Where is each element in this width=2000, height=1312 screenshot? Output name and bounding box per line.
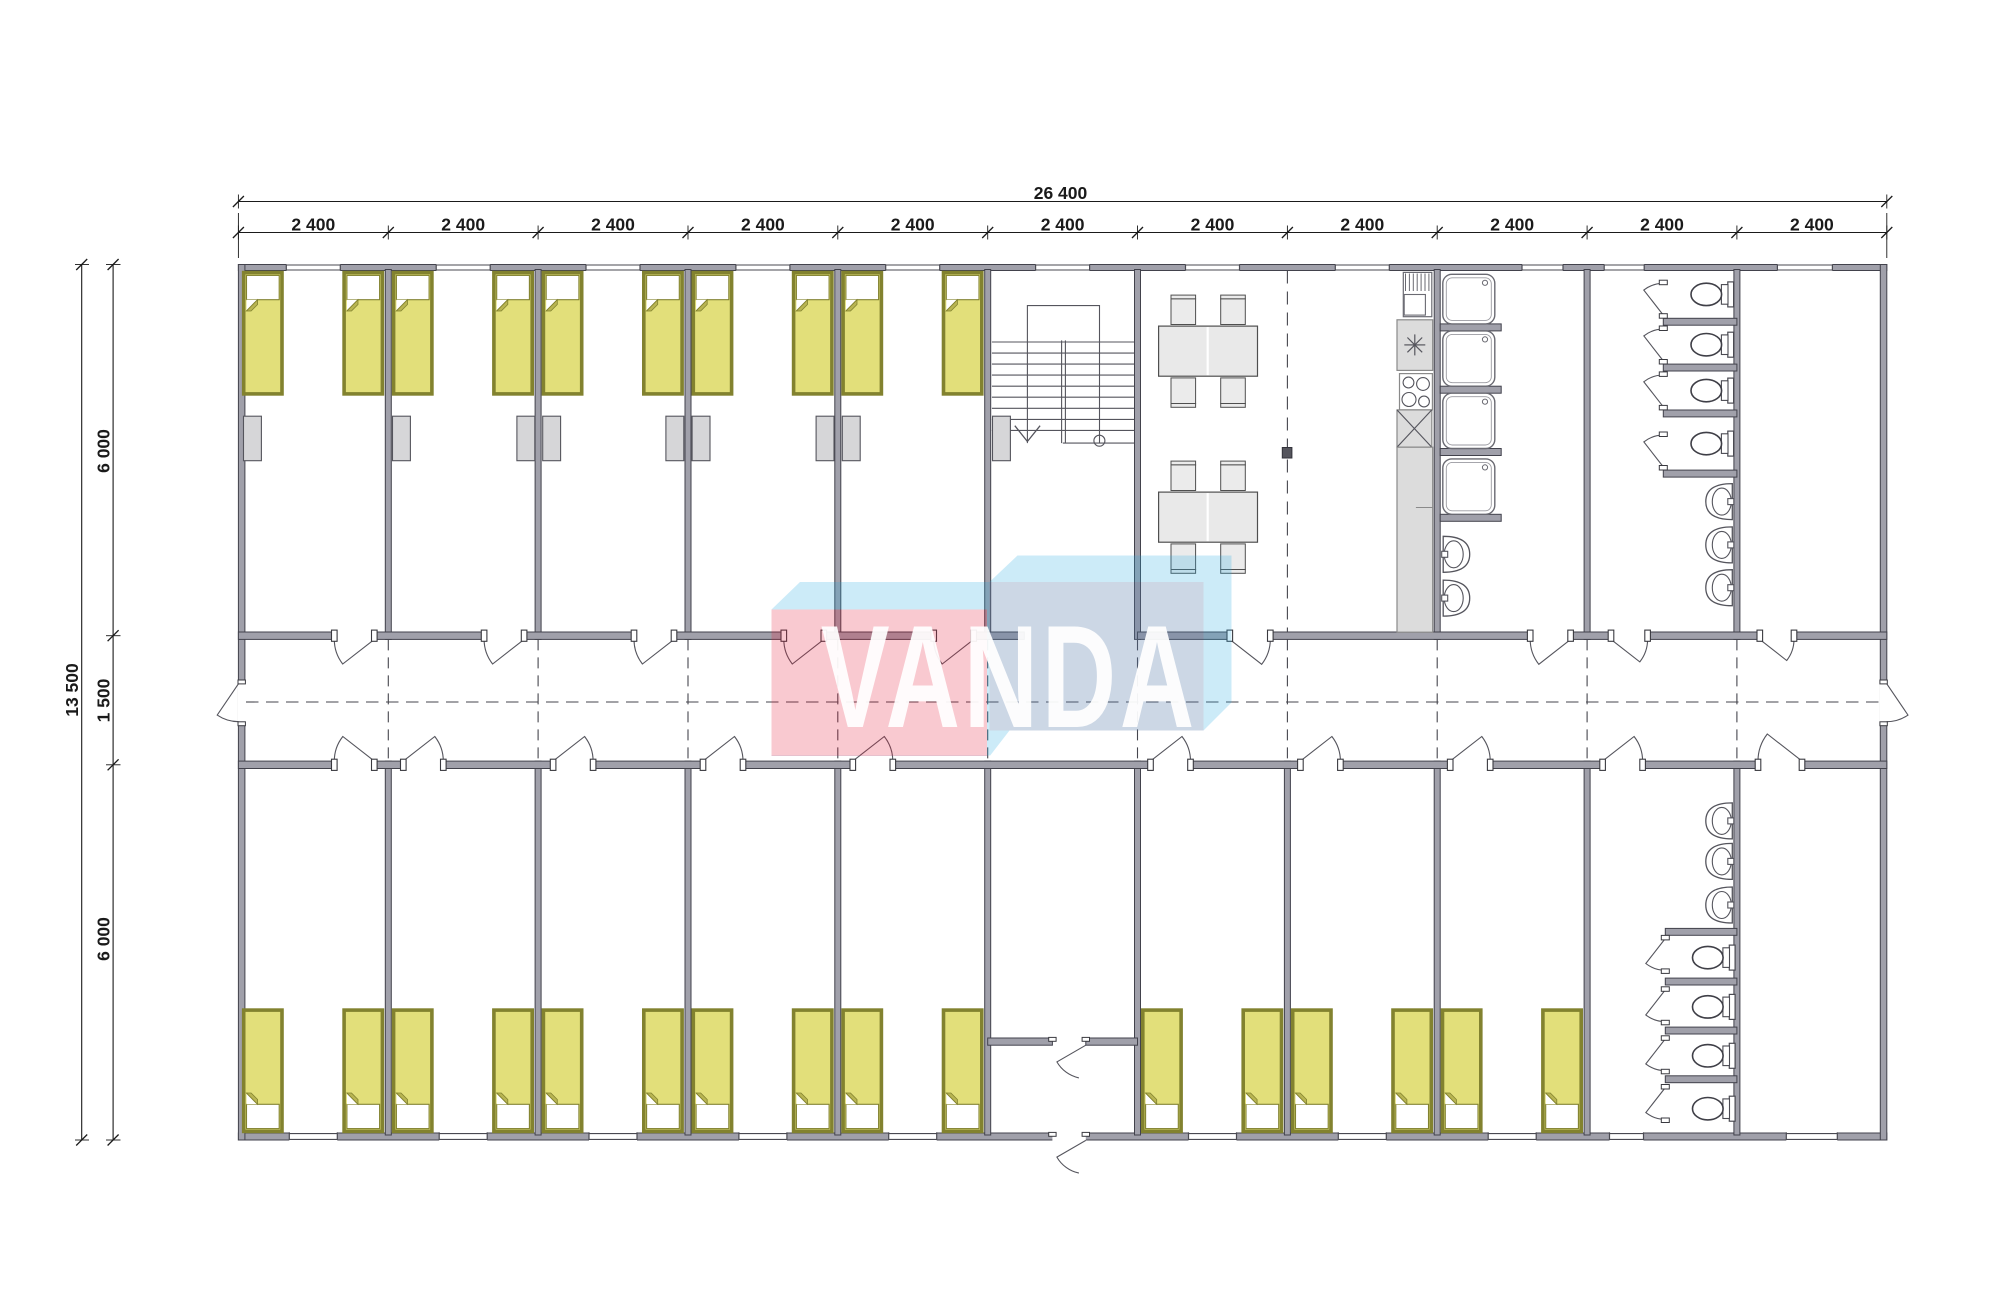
svg-text:VANDA: VANDA bbox=[821, 595, 1198, 758]
svg-text:2 400: 2 400 bbox=[1490, 214, 1534, 234]
svg-text:2 400: 2 400 bbox=[1640, 214, 1684, 234]
svg-text:2 400: 2 400 bbox=[1790, 214, 1834, 234]
svg-text:2 400: 2 400 bbox=[891, 214, 935, 234]
svg-text:2 400: 2 400 bbox=[741, 214, 785, 234]
svg-text:26 400: 26 400 bbox=[1034, 183, 1088, 203]
svg-text:2 400: 2 400 bbox=[441, 214, 485, 234]
svg-text:2 400: 2 400 bbox=[591, 214, 635, 234]
svg-text:2 400: 2 400 bbox=[1041, 214, 1085, 234]
svg-text:2 400: 2 400 bbox=[1191, 214, 1235, 234]
svg-text:2 400: 2 400 bbox=[291, 214, 335, 234]
svg-text:13 500: 13 500 bbox=[62, 663, 82, 717]
svg-text:1 500: 1 500 bbox=[94, 678, 114, 722]
svg-text:6 000: 6 000 bbox=[94, 917, 114, 961]
svg-text:6 000: 6 000 bbox=[94, 429, 114, 473]
svg-text:2 400: 2 400 bbox=[1340, 214, 1384, 234]
